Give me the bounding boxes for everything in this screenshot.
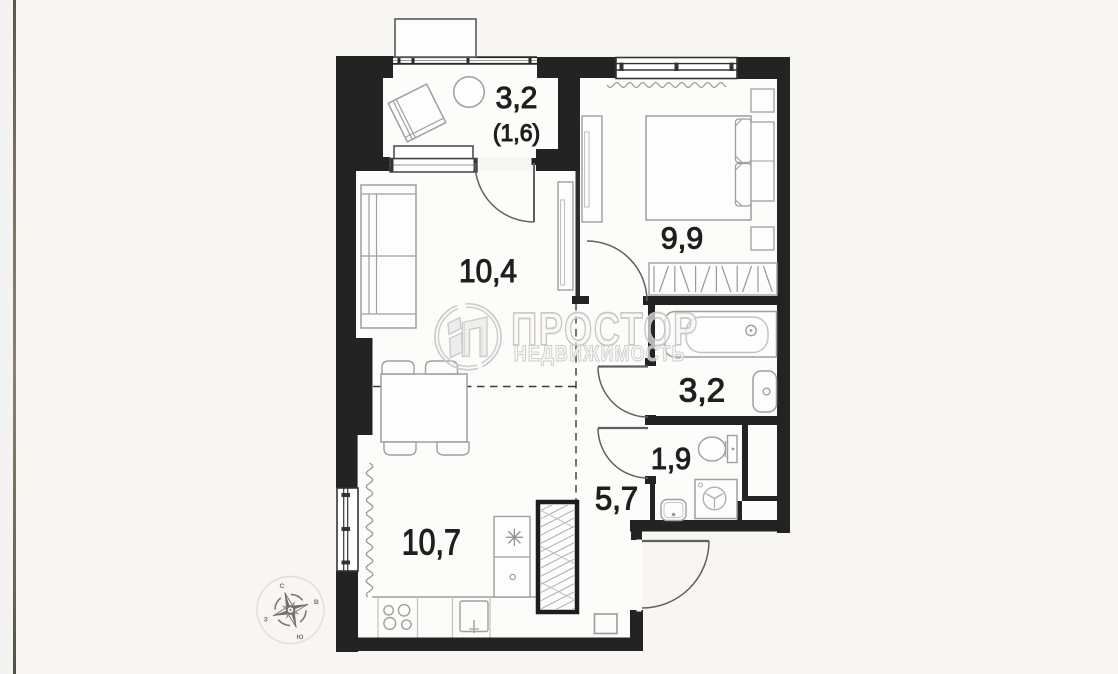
- svg-text:9,9: 9,9: [661, 222, 703, 256]
- svg-text:З: З: [264, 617, 268, 624]
- svg-text:10,7: 10,7: [402, 523, 461, 563]
- svg-text:(1,6): (1,6): [493, 120, 540, 147]
- svg-text:1,9: 1,9: [651, 442, 691, 476]
- svg-text:3,2: 3,2: [496, 82, 538, 115]
- svg-text:10,4: 10,4: [459, 253, 517, 289]
- svg-text:С: С: [280, 583, 285, 590]
- svg-text:3,2: 3,2: [679, 372, 725, 409]
- svg-text:НЕДВИЖИМОСТЬ: НЕДВИЖИМОСТЬ: [514, 342, 686, 366]
- svg-text:В: В: [314, 599, 319, 606]
- svg-text:5,7: 5,7: [595, 480, 638, 517]
- svg-text:Ю: Ю: [296, 634, 303, 641]
